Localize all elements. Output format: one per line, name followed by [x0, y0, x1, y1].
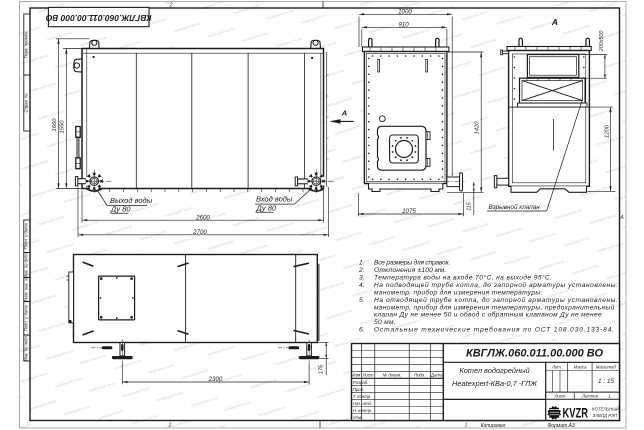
svg-text:Отклонения ±100 мм.: Отклонения ±100 мм. [374, 267, 447, 274]
svg-text:Взам. инв. №: Взам. инв. № [23, 276, 28, 302]
svg-text:KVZR: KVZR [563, 405, 589, 421]
svg-text:Инв. № дубл.: Инв. № дубл. [23, 252, 28, 278]
svg-text:Формат А3: Формат А3 [547, 423, 575, 429]
svg-text:КВГЛЖ.060.011.00.000 ВО: КВГЛЖ.060.011.00.000 ВО [45, 13, 151, 23]
svg-text:Утв.: Утв. [353, 415, 363, 420]
svg-text:Разраб.: Разраб. [353, 380, 369, 385]
svg-text:200х500: 200х500 [599, 31, 605, 53]
svg-text:Все размеры для справок.: Все размеры для справок. [374, 259, 450, 267]
svg-text:Взрывной клапан: Взрывной клапан [489, 203, 541, 211]
svg-text:115: 115 [467, 201, 473, 211]
svg-text:175: 175 [319, 364, 325, 374]
svg-text:клапан Ду не менее 50 и обвод: клапан Ду не менее 50 и обвод с обратным… [374, 311, 602, 319]
svg-text:5.: 5. [359, 297, 365, 304]
svg-text:Лит.: Лит. [551, 364, 562, 369]
svg-text:2: 2 [169, 3, 173, 9]
svg-text:Масса: Масса [574, 364, 587, 369]
svg-text:1550: 1550 [60, 120, 66, 134]
svg-text:Подп. и дата: Подп. и дата [23, 222, 28, 249]
svg-text:манометр, прибор для измерения: манометр, прибор для измерения температу… [374, 288, 543, 296]
svg-text:Листов: Листов [581, 394, 598, 399]
svg-text:910: 910 [398, 22, 409, 29]
svg-text:Котел водогрейный: Котел водогрейный [459, 366, 529, 375]
svg-text:Heatexpert-КВа-0,7 -ГЛЖ: Heatexpert-КВа-0,7 -ГЛЖ [452, 379, 538, 388]
svg-text:Ду 80: Ду 80 [256, 203, 277, 212]
svg-text:2: 2 [168, 423, 172, 429]
svg-text:Инв. № подл.: Инв. № подл. [23, 335, 28, 361]
svg-text:2.: 2. [358, 267, 365, 274]
svg-text:Справ. №: Справ. № [23, 93, 28, 112]
svg-text:Ду 80: Ду 80 [110, 204, 131, 213]
svg-text:Остальные технические требован: Остальные технические требования по ОСТ … [374, 326, 615, 334]
svg-text:А: А [619, 215, 624, 221]
svg-text:3.: 3. [359, 275, 365, 282]
svg-text:ЗАВОД РЭП: ЗАВОД РЭП [593, 413, 619, 418]
svg-text:Подп. и дата: Подп. и дата [23, 304, 28, 331]
svg-text:4.: 4. [359, 282, 365, 289]
svg-text:Температура воды на входе 70°С: Температура воды на входе 70°С, на выход… [374, 274, 552, 282]
svg-text:Изм: Изм [352, 373, 360, 378]
svg-text:Лист: Лист [361, 373, 373, 378]
svg-text:1.: 1. [359, 260, 365, 267]
svg-text:1660: 1660 [52, 118, 58, 132]
svg-text:6.: 6. [359, 327, 365, 334]
svg-text:На подводящей трубе котла, до: На подводящей трубе котла, до запорной а… [374, 281, 618, 289]
svg-text:А: А [341, 109, 347, 118]
svg-text:Копировал: Копировал [481, 423, 506, 429]
svg-text:Лист: Лист [553, 394, 565, 399]
svg-text:1075: 1075 [402, 208, 416, 215]
svg-text:Перв. примен.: Перв. примен. [23, 31, 28, 59]
svg-text:Дата: Дата [430, 373, 443, 378]
svg-text:Масштаб: Масштаб [596, 364, 617, 369]
svg-text:Пров.: Пров. [353, 387, 364, 392]
svg-text:1420: 1420 [475, 121, 481, 135]
svg-text:Т. контр.: Т. контр. [353, 394, 372, 399]
svg-text:2700: 2700 [192, 229, 207, 236]
svg-text:На отводящей трубе котла, до з: На отводящей трубе котла, до запорной ар… [374, 296, 618, 304]
svg-text:КОТЕЛЬНЫЙ: КОТЕЛЬНЫЙ [592, 406, 620, 411]
svg-text:№ докум.: № докум. [383, 373, 402, 378]
svg-text:КВГЛЖ.060.011.00.000 ВО: КВГЛЖ.060.011.00.000 ВО [466, 347, 603, 359]
svg-text:Вход воды: Вход воды [256, 195, 293, 204]
svg-text:1: 1 [465, 423, 468, 429]
svg-text:Нач. отд.: Нач. отд. [353, 401, 372, 406]
svg-text:1 : 15: 1 : 15 [598, 378, 614, 385]
svg-text:Н. контр.: Н. контр. [353, 408, 372, 413]
svg-text:50 мм.: 50 мм. [374, 319, 396, 326]
svg-text:2300: 2300 [208, 376, 223, 383]
svg-text:2600: 2600 [195, 214, 210, 221]
svg-text:манометр, прибор для измерения: манометр, прибор для измерения температу… [374, 303, 615, 311]
svg-text:1000: 1000 [398, 9, 412, 16]
svg-text:1200: 1200 [604, 124, 610, 138]
svg-text:А: А [551, 17, 558, 27]
svg-text:Подп.: Подп. [414, 373, 425, 378]
